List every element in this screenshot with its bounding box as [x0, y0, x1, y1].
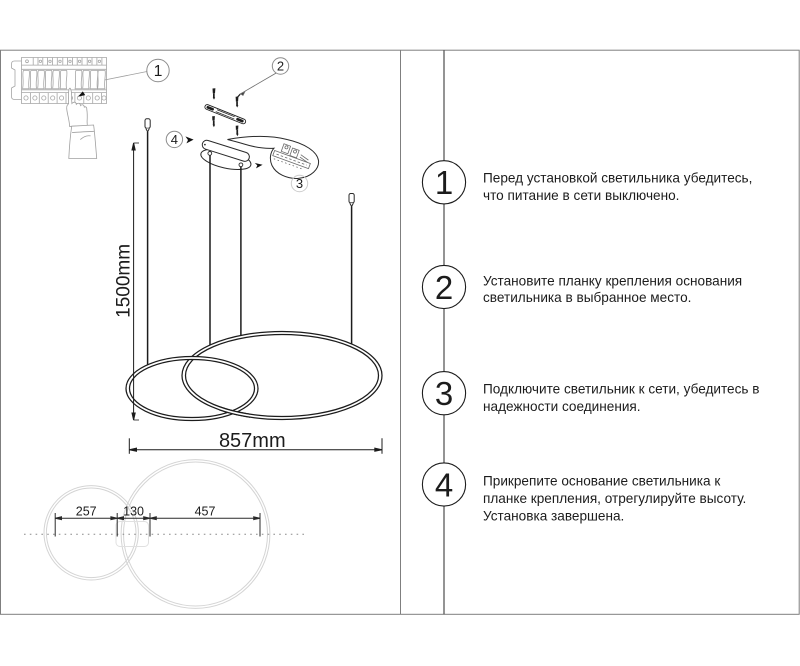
svg-text:Установите планку крепления ос: Установите планку крепления основания	[483, 274, 742, 289]
svg-text:1: 1	[154, 63, 163, 80]
svg-text:Перед установкой светильника у: Перед установкой светильника убедитесь,	[483, 170, 752, 185]
svg-text:планке крепления, отрегулируйт: планке крепления, отрегулируйте высоту.	[483, 491, 746, 506]
svg-text:130: 130	[123, 504, 144, 518]
svg-text:257: 257	[76, 504, 97, 518]
svg-text:надежности соединения.: надежности соединения.	[483, 399, 641, 414]
svg-text:3: 3	[435, 375, 453, 412]
svg-text:2: 2	[435, 269, 453, 306]
svg-text:4: 4	[171, 132, 178, 147]
svg-text:3: 3	[296, 176, 303, 191]
svg-text:4: 4	[435, 466, 453, 503]
svg-text:857mm: 857mm	[219, 430, 286, 452]
svg-text:457: 457	[195, 504, 216, 518]
svg-text:2: 2	[277, 59, 284, 74]
svg-text:Прикрепите основание светильни: Прикрепите основание светильника к	[483, 473, 721, 488]
svg-text:1: 1	[435, 164, 453, 201]
svg-text:1500mm: 1500mm	[114, 244, 135, 318]
svg-text:светильника в выбранное место.: светильника в выбранное место.	[483, 290, 691, 305]
svg-text:Подключите светильник к сети,: Подключите светильник к сети, убедитесь …	[483, 381, 760, 396]
svg-text:Установка завершена.: Установка завершена.	[483, 508, 624, 523]
svg-text:что питание в сети выключено.: что питание в сети выключено.	[483, 188, 679, 203]
